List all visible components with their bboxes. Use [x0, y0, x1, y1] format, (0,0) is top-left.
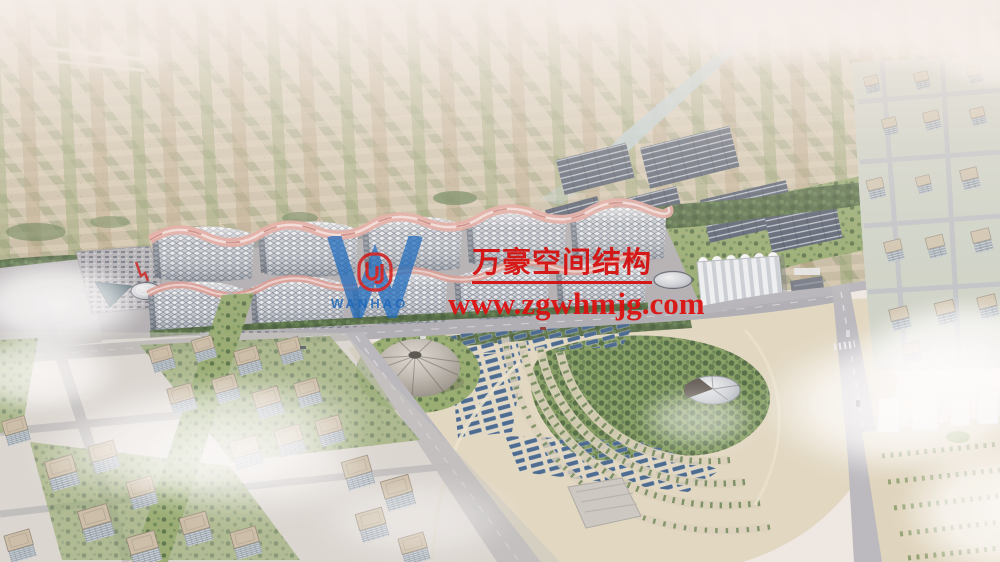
watermark-company-name: 万豪空间结构	[472, 246, 652, 284]
watermark-website: www.zgwhmjg.com	[448, 286, 705, 322]
cloud	[55, 30, 185, 72]
cloud	[636, 388, 761, 450]
cloud	[312, 478, 517, 560]
aerial-rendering: WANHAO 万豪空间结构 www.zgwhmjg.com	[0, 0, 1000, 562]
watermark-logo-text: WANHAO	[331, 296, 419, 311]
